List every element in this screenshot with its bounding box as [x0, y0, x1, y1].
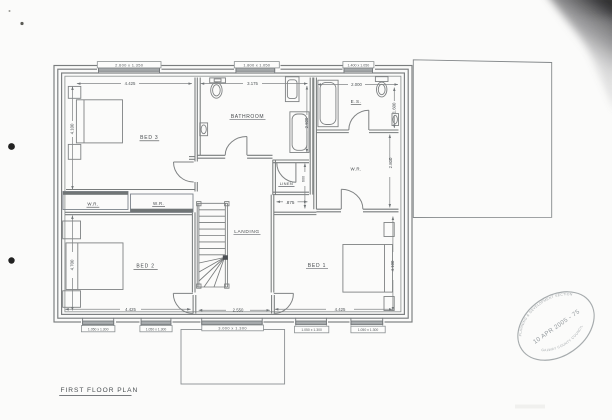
svg-text:1.600: 1.600: [391, 102, 396, 113]
svg-text:3.175: 3.175: [247, 81, 258, 86]
svg-text:4.425: 4.425: [125, 81, 136, 86]
svg-text:10 APR 2005 - 75: 10 APR 2005 - 75: [532, 308, 581, 346]
svg-text:1.050 x 1.300: 1.050 x 1.300: [358, 328, 379, 332]
svg-text:W.R.: W.R.: [87, 202, 98, 207]
svg-text:1.400 x 1.050: 1.400 x 1.050: [348, 64, 370, 68]
svg-text:W.R.: W.R.: [350, 166, 361, 171]
svg-text:LANDING: LANDING: [234, 229, 260, 235]
svg-text:2.550: 2.550: [233, 308, 244, 313]
svg-text:.875: .875: [286, 200, 295, 205]
svg-text:LINEN: LINEN: [280, 181, 293, 186]
svg-text:2.000: 2.000: [351, 82, 362, 87]
svg-text:BED 3: BED 3: [140, 135, 158, 141]
svg-text:4.425: 4.425: [125, 307, 136, 312]
svg-text:BED 2: BED 2: [136, 264, 154, 270]
svg-text:BED 1: BED 1: [308, 263, 326, 269]
svg-text:4.100: 4.100: [70, 123, 75, 134]
svg-text:2.800: 2.800: [388, 157, 393, 168]
svg-text:PLANNING & DEVELOPMENT SECTION: PLANNING & DEVELOPMENT SECTION: [509, 283, 577, 338]
svg-text:BATHROOM: BATHROOM: [231, 114, 264, 120]
svg-text:2.600: 2.600: [304, 117, 309, 128]
svg-text:E.S.: E.S.: [351, 99, 362, 104]
svg-text:4.100: 4.100: [390, 260, 395, 271]
svg-text:1.050 x 1.300: 1.050 x 1.300: [146, 327, 167, 331]
svg-text:GALWAY COUNTY COUNCIL: GALWAY COUNTY COUNCIL: [539, 321, 587, 360]
svg-text:FIRST FLOOR PLAN: FIRST FLOOR PLAN: [61, 387, 139, 394]
svg-text:1.050 x 1.300: 1.050 x 1.300: [301, 328, 322, 332]
svg-text:1.050 x 1.300: 1.050 x 1.300: [88, 327, 109, 331]
svg-text:3.000 x 1.300: 3.000 x 1.300: [218, 326, 247, 331]
svg-text:4.700: 4.700: [70, 259, 75, 270]
svg-text:600: 600: [302, 176, 306, 182]
svg-text:1.800 x 1.050: 1.800 x 1.050: [243, 63, 270, 68]
svg-text:4.425: 4.425: [335, 307, 346, 312]
svg-text:2.600 x 1.350: 2.600 x 1.350: [115, 63, 144, 68]
svg-text:W.R.: W.R.: [153, 201, 164, 206]
